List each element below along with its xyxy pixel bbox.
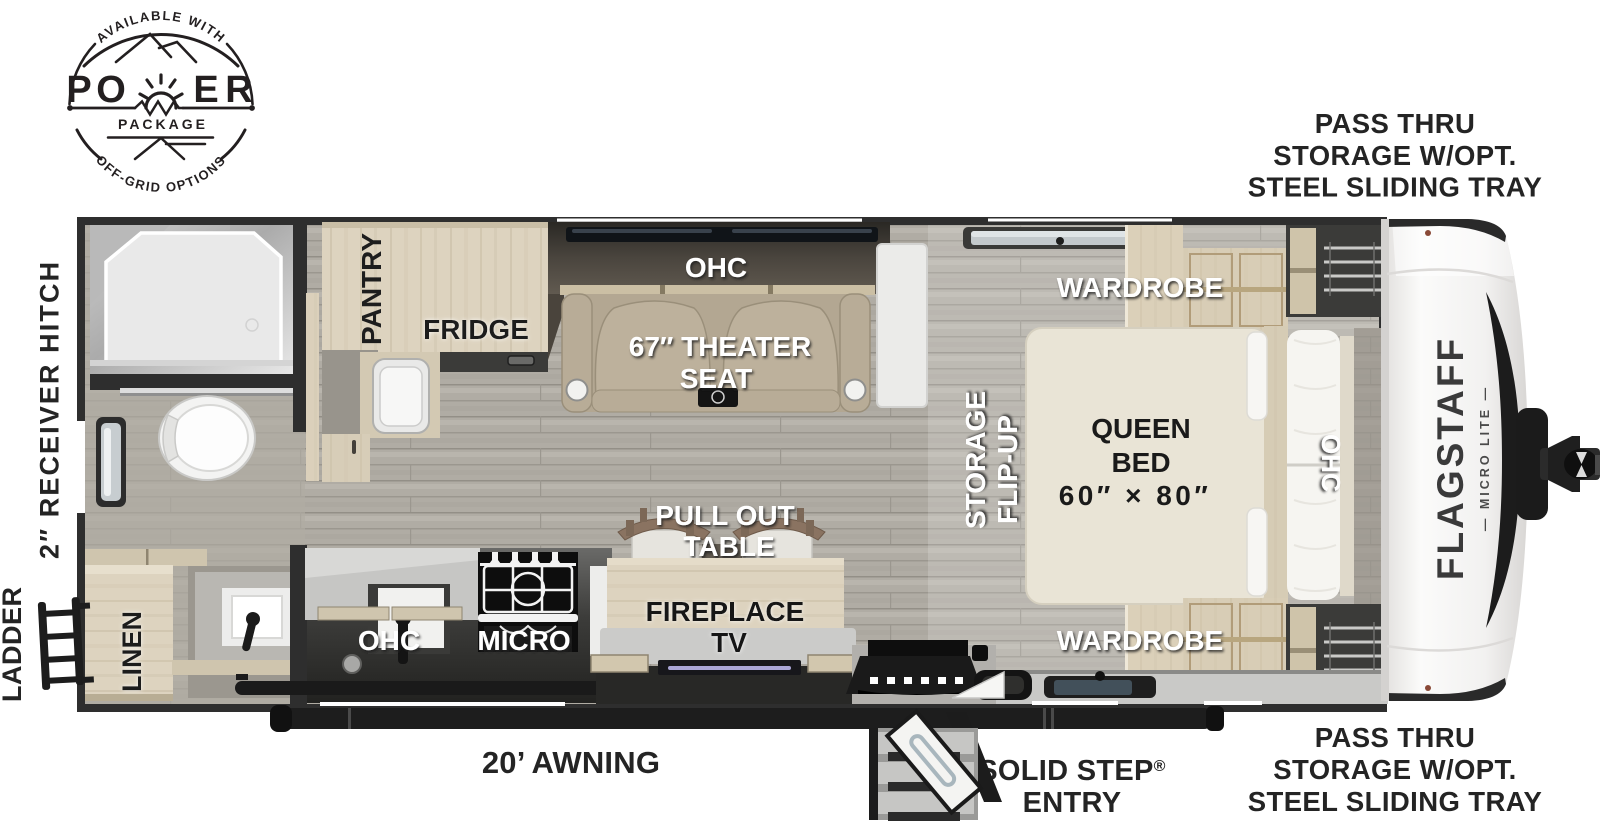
svg-text:LINEN: LINEN xyxy=(117,611,147,692)
svg-text:SOLID STEP®: SOLID STEP® xyxy=(978,755,1166,787)
svg-text:20’ AWNING: 20’ AWNING xyxy=(482,745,660,780)
svg-text:OHC: OHC xyxy=(358,625,420,656)
svg-text:67″ THEATER: 67″ THEATER xyxy=(629,331,811,362)
svg-text:WARDROBE: WARDROBE xyxy=(1057,272,1223,303)
svg-text:P: P xyxy=(66,69,91,111)
svg-text:OHC: OHC xyxy=(685,252,747,283)
svg-text:PANTRY: PANTRY xyxy=(356,233,387,345)
svg-text:TABLE: TABLE xyxy=(683,531,774,562)
svg-text:SEAT: SEAT xyxy=(680,363,753,394)
svg-text:2″ RECEIVER HITCH: 2″ RECEIVER HITCH xyxy=(35,260,65,559)
svg-text:PASS THRU: PASS THRU xyxy=(1315,108,1475,139)
svg-text:STORAGE: STORAGE xyxy=(960,391,991,529)
svg-text:STORAGE W/OPT.: STORAGE W/OPT. xyxy=(1273,140,1516,171)
svg-text:TV: TV xyxy=(711,627,747,658)
svg-text:— MICRO LITE —: — MICRO LITE — xyxy=(1478,385,1492,531)
svg-text:FIREPLACE: FIREPLACE xyxy=(646,596,805,627)
svg-text:ENTRY: ENTRY xyxy=(1023,787,1122,819)
svg-text:QUEEN: QUEEN xyxy=(1091,413,1191,444)
svg-text:60″ × 80″: 60″ × 80″ xyxy=(1059,480,1212,511)
svg-text:BED: BED xyxy=(1111,447,1170,478)
svg-text:FRIDGE: FRIDGE xyxy=(423,314,529,345)
svg-text:PULL OUT: PULL OUT xyxy=(655,500,794,531)
svg-text:STORAGE W/OPT.: STORAGE W/OPT. xyxy=(1273,754,1516,785)
svg-text:R: R xyxy=(225,69,252,111)
svg-text:E: E xyxy=(193,69,218,111)
svg-text:WARDROBE: WARDROBE xyxy=(1057,625,1223,656)
svg-text:O: O xyxy=(96,69,126,111)
svg-text:FLAGSTAFF: FLAGSTAFF xyxy=(1430,336,1471,580)
svg-text:OHC: OHC xyxy=(1316,434,1346,492)
svg-text:STEEL SLIDING TRAY: STEEL SLIDING TRAY xyxy=(1248,786,1542,817)
svg-text:STEEL SLIDING TRAY: STEEL SLIDING TRAY xyxy=(1248,172,1542,203)
svg-text:PACKAGE: PACKAGE xyxy=(118,116,208,132)
svg-text:FLIP-UP: FLIP-UP xyxy=(992,415,1023,524)
svg-text:MICRO: MICRO xyxy=(477,625,570,656)
svg-text:LADDER: LADDER xyxy=(0,587,27,703)
svg-text:PASS THRU: PASS THRU xyxy=(1315,722,1475,753)
